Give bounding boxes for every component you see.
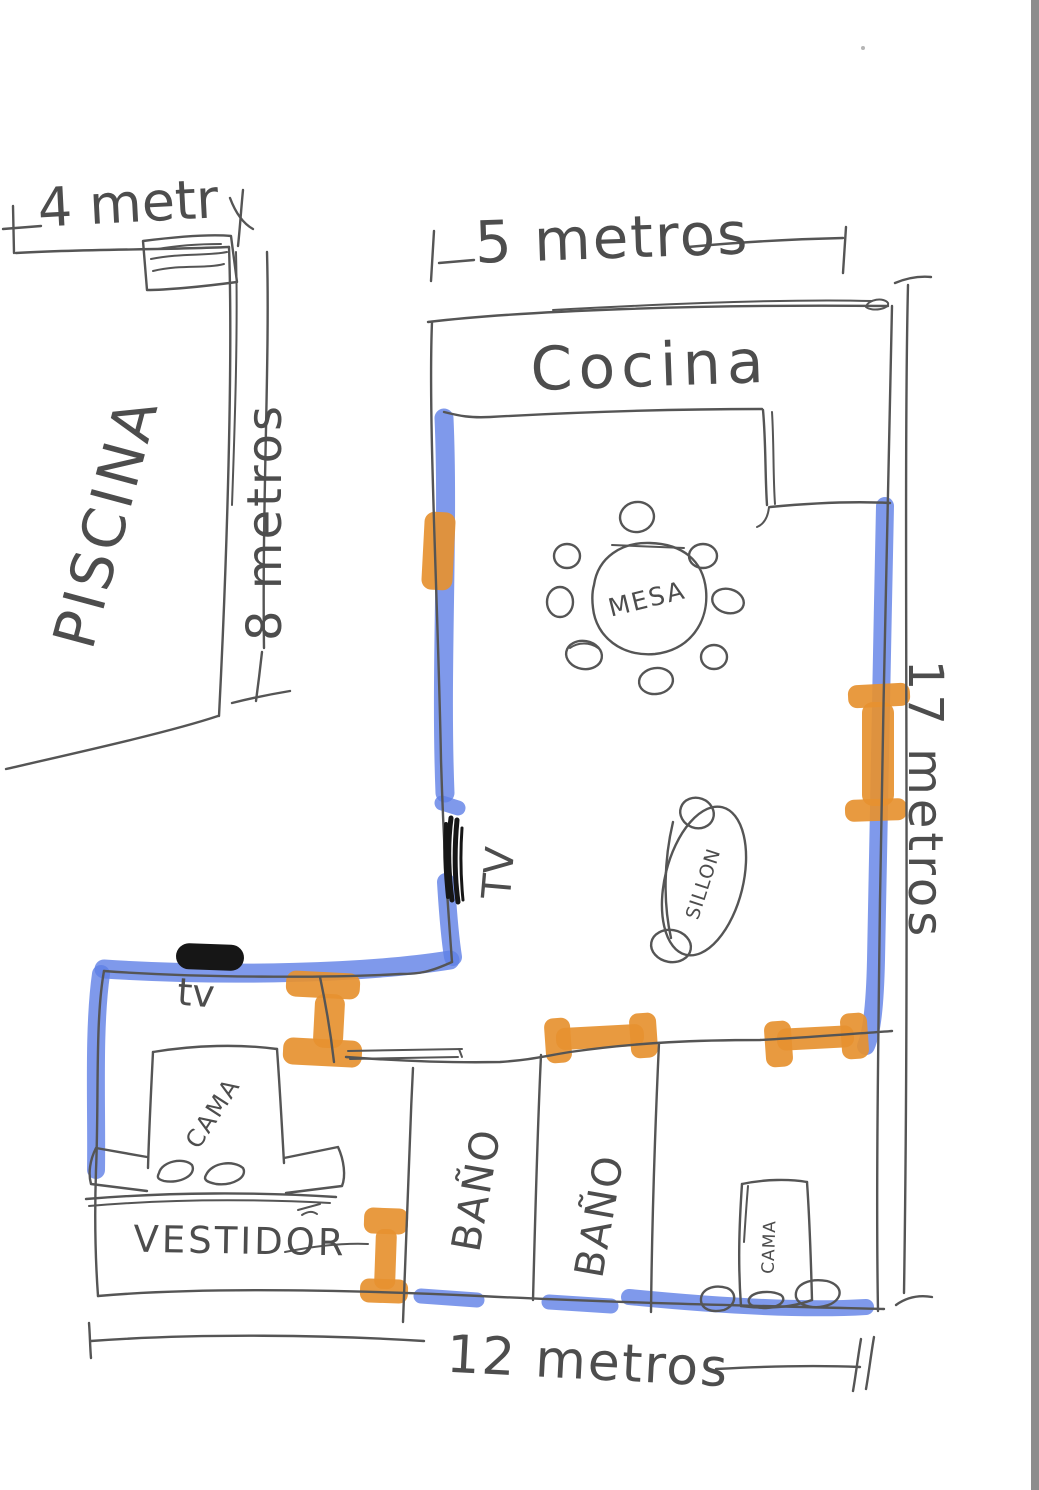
label-tv-living: TV [477, 845, 521, 900]
label-dim-17m: 17 metros [901, 660, 949, 941]
divider-bathrooms [533, 1055, 541, 1300]
floor-plan-canvas: 4 metr PISCINA 8 metros 5 metros Cocina … [0, 0, 1039, 1490]
chair [709, 585, 746, 616]
chair [689, 544, 717, 568]
tv-marks-black [176, 818, 463, 971]
door-bathroom-2 [543, 1012, 658, 1064]
blue-window-bottom-2 [549, 1302, 611, 1306]
tv-living-mark [445, 818, 463, 902]
label-tv-bedroom: tv [176, 973, 216, 1014]
chair [554, 544, 580, 568]
chair [618, 499, 657, 534]
tv-bedroom-mark [176, 943, 245, 971]
door-living-left [421, 511, 456, 591]
label-dim-4m: 4 metr [36, 172, 219, 235]
divider-bedroom2-left [651, 1043, 659, 1312]
right-edge-strip [1031, 0, 1039, 1490]
label-dim-8m: 8 metros [241, 403, 289, 641]
label-dressing-room: VESTIDOR [133, 1221, 347, 1262]
pool-bench [143, 235, 237, 290]
divider-bathroom1-left [403, 1068, 413, 1322]
label-bed-right: CAMA [761, 1220, 780, 1274]
kitchen-counter [444, 409, 890, 527]
blue-wall-cap [442, 803, 458, 808]
wall-top [428, 306, 888, 322]
pillow [158, 1161, 193, 1182]
label-dim-5m: 5 metros [474, 204, 750, 272]
chair [701, 645, 727, 669]
chair [547, 587, 573, 617]
door-dressing-room [360, 1207, 409, 1304]
label-kitchen: Cocina [529, 332, 770, 400]
pillow [205, 1163, 244, 1184]
blue-wall-bedroom-top [104, 960, 450, 973]
blue-wall-living-left [443, 418, 445, 793]
label-dim-12m: 12 metros [445, 1329, 730, 1396]
chair [637, 666, 674, 696]
stray-dot [861, 46, 865, 50]
